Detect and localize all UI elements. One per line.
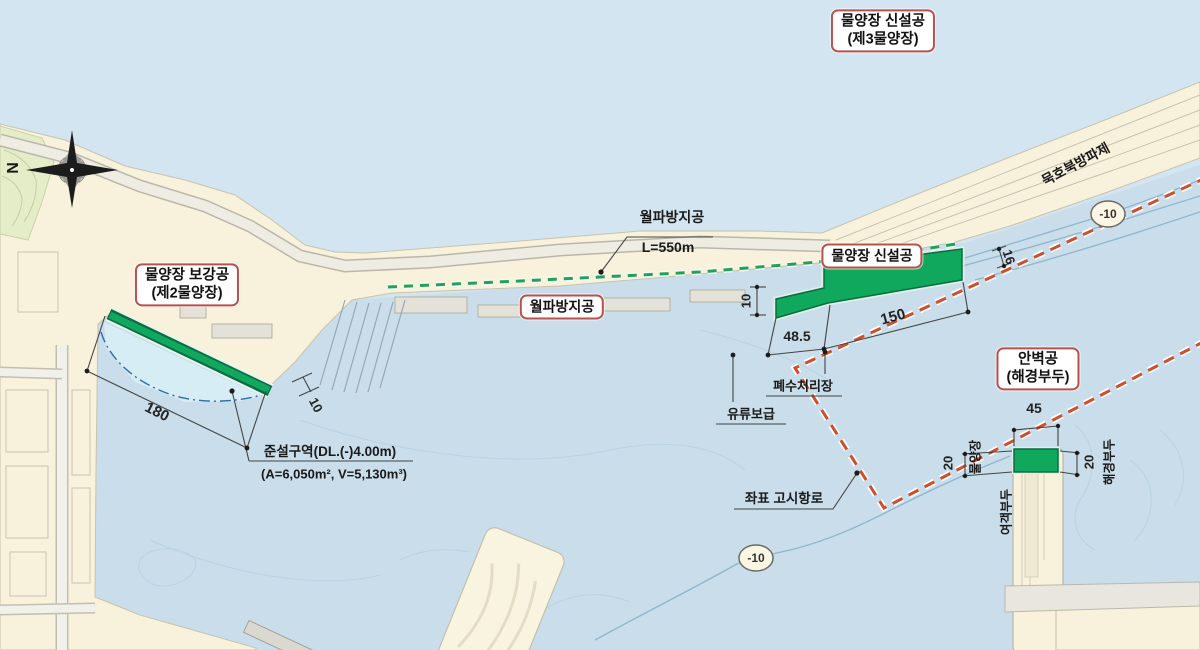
wave-prevention-length-label: L=550m bbox=[642, 239, 695, 255]
dim-48-5: 48.5 bbox=[783, 328, 810, 344]
label-line: 물양장 신설공 bbox=[841, 13, 925, 31]
label-box-wave-prevention: 월파방지공 bbox=[520, 294, 604, 319]
dredge-area-label-line2: (A=6,050m², V=5,130m³) bbox=[261, 467, 407, 482]
dim-10-mid: 10 bbox=[739, 294, 754, 308]
label-line: 안벽공 bbox=[1006, 351, 1069, 369]
pier-coastguard-label: 해경부두 bbox=[1099, 439, 1118, 485]
label-line: (제2물양장) bbox=[145, 285, 229, 303]
pier-quay-wall bbox=[1014, 449, 1058, 472]
oil-supply-label: 유류보급 bbox=[727, 404, 775, 423]
map-canvas bbox=[0, 0, 1200, 650]
dim-45: 45 bbox=[1026, 400, 1042, 416]
compass-north-label: N bbox=[5, 162, 23, 174]
label-line: (해경부두) bbox=[1006, 369, 1069, 387]
label-box-new-quay: 물양장 신설공 bbox=[821, 243, 922, 268]
dim-20-left: 20 bbox=[941, 456, 956, 470]
dredge-area-label-line1: 준설구역(DL.(-)4.00m) bbox=[264, 440, 396, 460]
label-box-second-quay: 물양장 보강공 (제2물양장) bbox=[135, 263, 239, 306]
harbor-plan-map: 물양장 신설공 (제3물양장) 물양장 보강공 (제2물양장) 월파방지공 물양… bbox=[0, 0, 1200, 650]
label-line: 물양장 보강공 bbox=[145, 267, 229, 285]
depth-label: -10 bbox=[747, 551, 764, 565]
label-box-quay-wall: 안벽공 (해경부두) bbox=[996, 347, 1079, 390]
dim-20-right: 20 bbox=[1082, 455, 1097, 469]
label-line: 물양장 신설공 bbox=[831, 247, 912, 263]
pier-mulyangjang-label: 물양장 bbox=[965, 440, 984, 475]
wave-prevention-leader-label: 월파방지공 bbox=[640, 207, 704, 227]
route-label: 좌표 고시항로 bbox=[745, 487, 823, 507]
label-line: (제3물양장) bbox=[841, 31, 925, 49]
pier-passenger-label: 여객부두 bbox=[996, 489, 1015, 535]
label-box-third-quay: 물양장 신설공 (제3물양장) bbox=[831, 9, 935, 52]
label-line: 월파방지공 bbox=[530, 298, 594, 314]
depth-label: -10 bbox=[1099, 207, 1116, 221]
waste-treatment-label: 폐수처리장 bbox=[773, 376, 833, 395]
